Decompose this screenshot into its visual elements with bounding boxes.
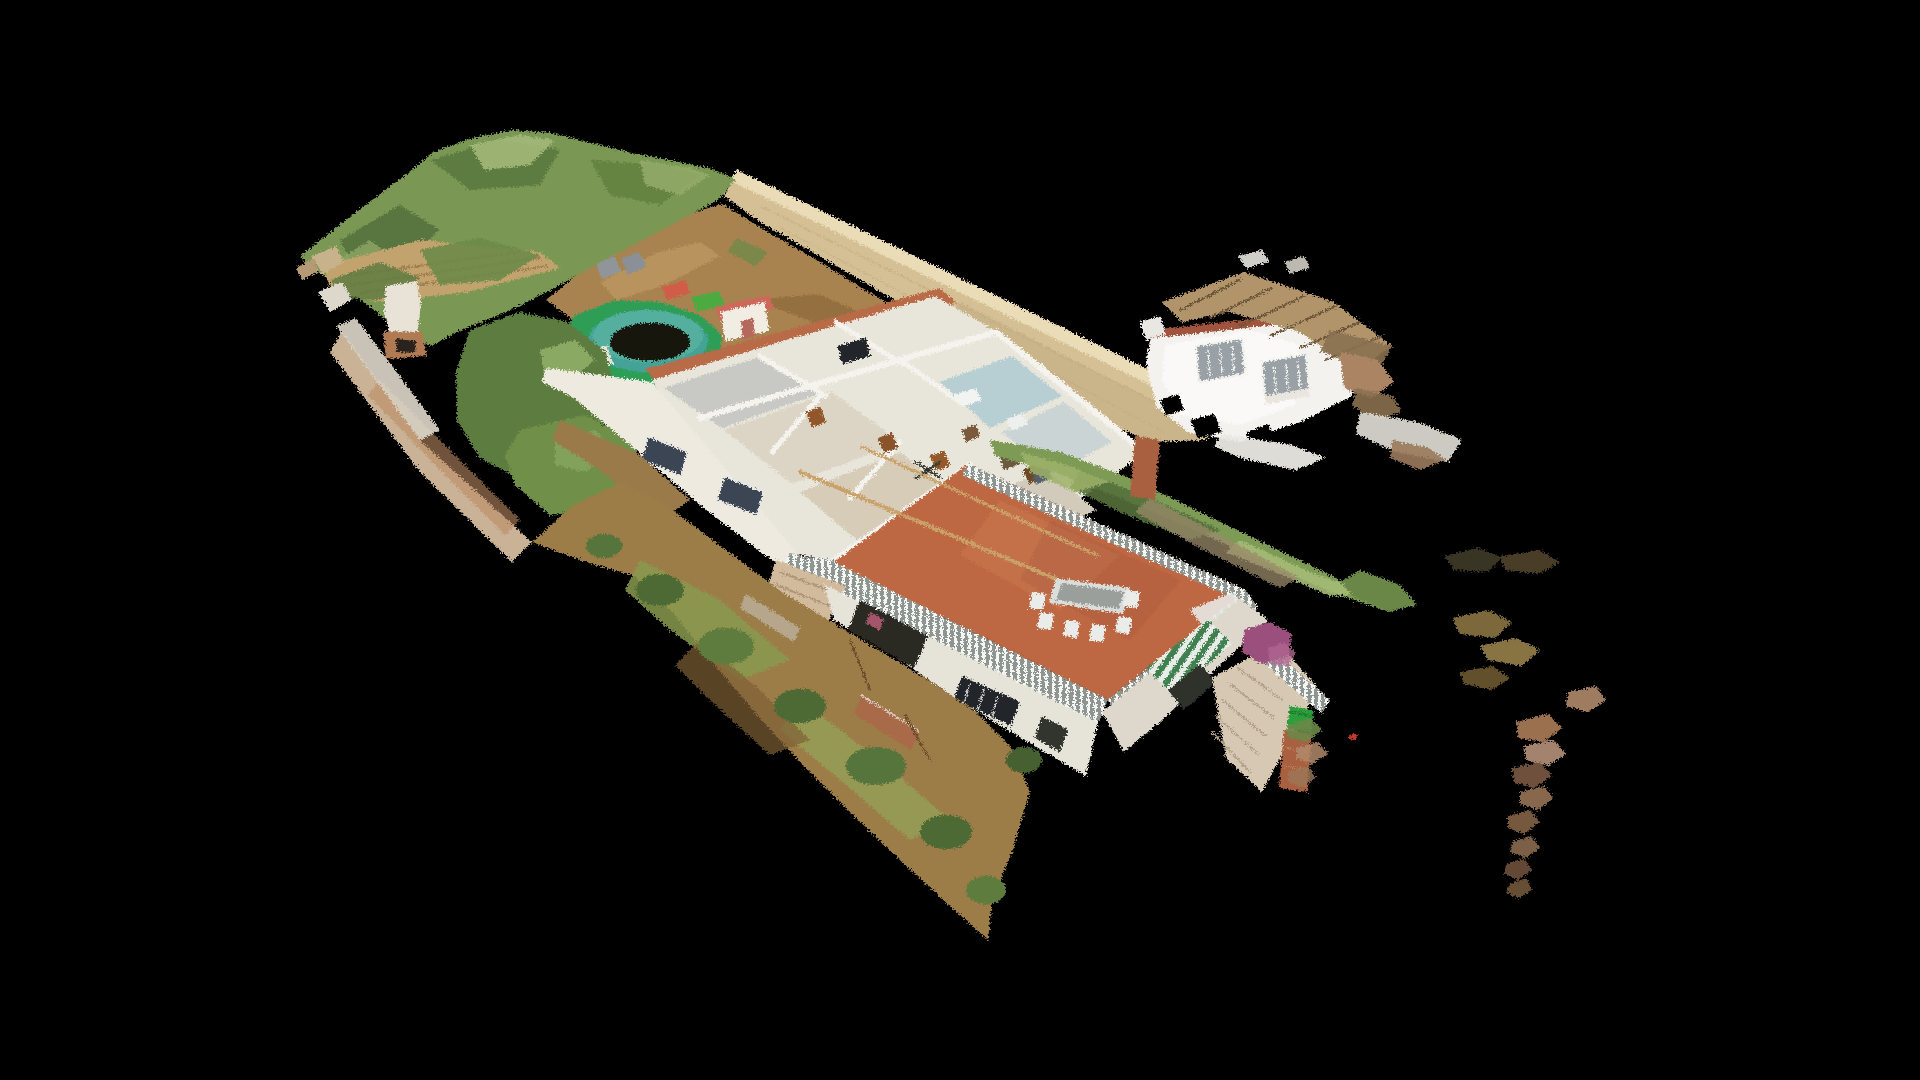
neighbor-top-bit-2 — [1284, 256, 1310, 274]
garden-bush-4 — [846, 747, 906, 785]
debris-trail-8 — [1506, 878, 1532, 898]
garden-bush-6 — [966, 876, 1006, 904]
debris-ochre-3 — [1460, 666, 1510, 690]
debris-trail-1 — [1516, 714, 1562, 742]
dining-chair-6 — [1123, 590, 1140, 608]
debris-ochre-1 — [1452, 610, 1512, 638]
dining-chair-3 — [1063, 620, 1080, 638]
side-hedge-tip-bush — [1340, 570, 1416, 612]
debris-trail-5 — [1508, 810, 1540, 834]
dining-chair-1 — [1029, 592, 1046, 610]
garden-bush-1 — [636, 574, 684, 606]
bbq-opening — [396, 339, 416, 353]
debris-trail-7 — [1504, 858, 1532, 880]
scan-debris — [1286, 548, 1606, 898]
debris-trail-6 — [1510, 836, 1540, 858]
garden-bush-5 — [920, 815, 972, 849]
dining-chair-2 — [1037, 612, 1054, 630]
debris-ochre-2 — [1480, 638, 1540, 666]
viewer-canvas[interactable] — [0, 0, 1920, 1080]
ceiling-fan-hub — [925, 468, 931, 473]
dining-chair-5 — [1115, 616, 1132, 634]
brick-chimney — [1130, 436, 1160, 500]
debris-dark-1 — [1444, 548, 1502, 572]
garden-bush-7 — [586, 534, 622, 558]
debris-dark-2 — [1500, 550, 1560, 574]
dining-chair-4 — [1089, 624, 1106, 642]
garden-bush-2 — [698, 628, 754, 664]
debris-trail-2 — [1524, 740, 1566, 766]
debris-red-dot — [1349, 734, 1357, 740]
garden-bush-8 — [1006, 747, 1042, 773]
dollhouse-model[interactable] — [0, 0, 1920, 1080]
debris-trail-3 — [1512, 762, 1552, 788]
point-cloud-scene — [296, 130, 1606, 940]
pool-water — [610, 323, 690, 361]
debris-edge-1 — [1566, 686, 1606, 712]
debris-trail-4 — [1520, 786, 1554, 810]
bbq-chimney — [384, 281, 421, 336]
playhouse-door — [741, 318, 755, 339]
garden-bush-3 — [774, 689, 826, 723]
neighbor-top-bit-1 — [1238, 250, 1270, 268]
